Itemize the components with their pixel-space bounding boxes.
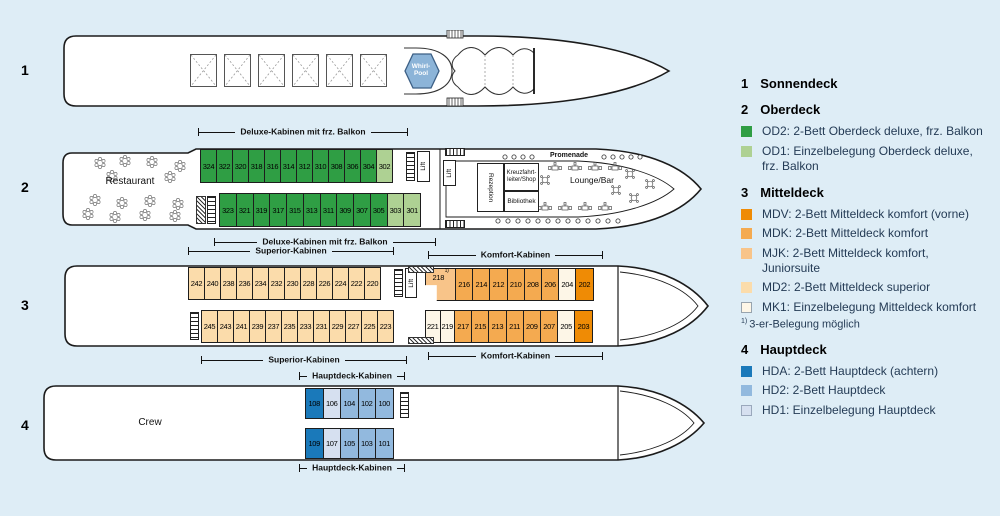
cabin-315[interactable]: 315 [286,193,304,227]
legend-item-hd2: HD2: 2-Bett Hauptdeck [741,383,990,398]
legend-item-mdk: MDK: 2-Bett Mitteldeck komfort [741,226,990,241]
cabin-219[interactable]: 219 [440,310,456,343]
cabin-312[interactable]: 312 [296,149,313,183]
cabin-306[interactable]: 306 [344,149,361,183]
section-label-hauptdeck-bottom: Hauptdeck-Kabinen [299,463,405,473]
cabin-316[interactable]: 316 [264,149,281,183]
stairs-icon [196,196,206,224]
cabin-226[interactable]: 226 [316,267,333,300]
color-swatch-od1 [741,146,752,157]
stairs-icon [400,392,409,418]
legend-item-hda: HDA: 2-Bett Hauptdeck (achtern) [741,364,990,379]
legend-item-hd1: HD1: Einzelbelegung Hauptdeck [741,403,990,418]
deck-plan: 1 Whirl-Pool 2 [0,0,1000,516]
cabin-238[interactable]: 238 [220,267,237,300]
cabin-235[interactable]: 235 [281,310,298,343]
cabin-302[interactable]: 302 [376,149,393,183]
color-swatch-hd2 [741,385,752,396]
legend-section-mitteldeck: 3 Mitteldeck MDV: 2-Bett Mitteldeck komf… [741,185,999,331]
legend-deck-title: Mitteldeck [760,185,824,200]
section-label-hauptdeck-top: Hauptdeck-Kabinen [299,371,405,381]
cabin-220[interactable]: 220 [364,267,381,300]
cabin-202[interactable]: 202 [575,268,593,301]
cabin-224[interactable]: 224 [332,267,349,300]
hauptdeck-cabin-row-bottom: 109107105103101 [305,428,394,459]
restaurant-label: Restaurant [85,176,175,187]
stairs-icon [190,312,199,340]
cabin-241[interactable]: 241 [233,310,250,343]
mitteldeck-superior-row-top: 242240238236234232230228226224222220 [188,267,381,300]
color-swatch-od2 [741,126,752,137]
cabin-210[interactable]: 210 [507,268,525,301]
section-label-komfort-bottom: Komfort-Kabinen [428,351,603,361]
cabin-229[interactable]: 229 [329,310,346,343]
color-swatch-mk1 [741,302,752,313]
legend-section-sonnendeck: 1 Sonnendeck [741,76,999,91]
cabin-204[interactable]: 204 [558,268,576,301]
cabin-222[interactable]: 222 [348,267,365,300]
gangway-hatch [408,266,434,273]
legend-item-mk1: MK1: Einzelbelegung Mitteldeck komfort [741,300,990,315]
cabin-206[interactable]: 206 [541,268,559,301]
cabin-240[interactable]: 240 [204,267,221,300]
cabin-323[interactable]: 323 [219,193,237,227]
cabin-232[interactable]: 232 [268,267,285,300]
cabin-243[interactable]: 243 [217,310,234,343]
sundeck-panel [258,54,285,87]
lift-box: Lift [417,151,430,182]
cabin-100[interactable]: 100 [375,388,394,419]
deck-number-2: 2 [21,179,29,195]
stairs-icon [207,196,216,224]
cabin-245[interactable]: 245 [201,310,218,343]
deck-number-3: 3 [21,297,29,313]
stairs-icon [406,152,415,181]
awning-icon [452,48,534,95]
mitteldeck-komfort-row-bottom: 221219217215213211209207205203 [425,310,593,343]
cabin-106[interactable]: 106 [323,388,342,419]
section-label-superior-bottom: Superior-Kabinen [201,355,407,365]
mitteldeck-komfort-row-top: 2181)216214212210208206204202 [425,268,594,301]
stairs-icon [445,148,465,156]
stairs-icon [445,220,465,228]
library-box: Bibliothek [504,191,539,212]
legend-deck-title: Hauptdeck [760,342,826,357]
oberdeck-cabin-row-top: 324322320318316314312310308306304302 [200,149,393,183]
sundeck-panel [326,54,353,87]
cabin-230[interactable]: 230 [284,267,301,300]
cabin-107[interactable]: 107 [323,428,342,459]
cabin-320[interactable]: 320 [232,149,249,183]
cabin-205[interactable]: 205 [557,310,575,343]
whirlpool-label: Whirl-Pool [406,63,436,77]
cabin-208[interactable]: 208 [524,268,542,301]
gangway-hatch [408,337,434,344]
cabin-314[interactable]: 314 [280,149,297,183]
legend-item-od2: OD2: 2-Bett Oberdeck deluxe, frz. Balkon [741,124,990,139]
color-swatch-hda [741,366,752,377]
legend-deck-number: 3 [741,185,748,200]
stairs-icon [394,269,403,297]
cabin-237[interactable]: 237 [265,310,282,343]
cabin-313[interactable]: 313 [303,193,321,227]
deck-number-4: 4 [21,417,29,433]
cabin-310[interactable]: 310 [312,149,329,183]
cabin-207[interactable]: 207 [540,310,558,343]
hauptdeck-cabin-row-top: 108106104102100 [305,388,394,419]
reception-box: Rezeption [477,163,504,212]
cabin-318[interactable]: 318 [248,149,265,183]
cabin-321[interactable]: 321 [236,193,254,227]
cabin-311[interactable]: 311 [320,193,338,227]
sundeck-panel [224,54,251,87]
cabin-322[interactable]: 322 [216,149,233,183]
cabin-317[interactable]: 317 [269,193,287,227]
lift-box: Lift [443,160,456,186]
cabin-215[interactable]: 215 [471,310,489,343]
legend-item-mdv: MDV: 2-Bett Mitteldeck komfort (vorne) [741,207,990,222]
color-swatch-md2 [741,282,752,293]
cruise-director-shop-box: Kreuzfahrt-leiter/Shop [504,163,539,191]
section-label-superior-top: Superior-Kabinen [188,246,394,256]
lounge-bar-label: Lounge/Bar [552,175,632,185]
cabin-225[interactable]: 225 [361,310,378,343]
cabin-303[interactable]: 303 [387,193,405,227]
sundeck-panel [360,54,387,87]
legend-deck-number: 4 [741,342,748,357]
crew-label: Crew [110,417,190,428]
cabin-217[interactable]: 217 [454,310,472,343]
legend-deck-title: Sonnendeck [760,76,837,91]
sundeck-panel [292,54,319,87]
cabin-101[interactable]: 101 [375,428,394,459]
cabin-213[interactable]: 213 [488,310,506,343]
cabin-216[interactable]: 216 [455,268,473,301]
legend-section-hauptdeck: 4 Hauptdeck HDA: 2-Bett Hauptdeck (achte… [741,342,999,418]
cabin-236[interactable]: 236 [236,267,253,300]
cabin-102[interactable]: 102 [358,388,377,419]
cabin-305[interactable]: 305 [370,193,388,227]
cabin-203[interactable]: 203 [574,310,592,343]
cabin-109[interactable]: 109 [305,428,324,459]
cabin-239[interactable]: 239 [249,310,266,343]
cabin-301[interactable]: 301 [403,193,421,227]
cabin-324[interactable]: 324 [200,149,217,183]
color-swatch-hd1 [741,405,752,416]
legend-item-md2: MD2: 2-Bett Mitteldeck superior [741,280,990,295]
legend-deck-title: Oberdeck [760,102,820,117]
cabin-228[interactable]: 228 [300,267,317,300]
legend-deck-number: 1 [741,76,748,91]
legend-item-mjk: MJK: 2-Bett Mitteldeck komfort, Juniorsu… [741,246,990,276]
color-swatch-mdv [741,209,752,220]
cabin-211[interactable]: 211 [506,310,524,343]
cabin-308[interactable]: 308 [328,149,345,183]
cabin-234[interactable]: 234 [252,267,269,300]
cabin-105[interactable]: 105 [340,428,359,459]
cabin-108[interactable]: 108 [305,388,324,419]
oberdeck-cabin-row-bottom: 323321319317315313311309307305303301 [219,193,421,227]
legend-footnote: 1)3-er-Belegung möglich [741,318,999,331]
legend-deck-number: 2 [741,102,748,117]
cabin-231[interactable]: 231 [313,310,330,343]
legend-item-od1: OD1: Einzelbelegung Oberdeck deluxe, frz… [741,144,990,174]
sundeck-panel [190,54,217,87]
cabin-103[interactable]: 103 [358,428,377,459]
legend: 1 Sonnendeck 2 Oberdeck OD2: 2-Bett Ober… [741,76,999,429]
color-swatch-mjk [741,248,752,259]
cabin-304[interactable]: 304 [360,149,377,183]
cabin-212[interactable]: 212 [489,268,507,301]
cabin-233[interactable]: 233 [297,310,314,343]
mitteldeck-superior-row-bottom: 245243241239237235233231229227225223 [201,310,394,343]
cabin-104[interactable]: 104 [340,388,359,419]
color-swatch-mdk [741,228,752,239]
section-label-deluxe-top: Deluxe-Kabinen mit frz. Balkon [198,127,408,137]
cabin-309[interactable]: 309 [336,193,354,227]
legend-section-oberdeck: 2 Oberdeck OD2: 2-Bett Oberdeck deluxe, … [741,102,999,174]
cabin-209[interactable]: 209 [523,310,541,343]
deck-number-1: 1 [21,62,29,78]
promenade-label: Promenade [535,152,603,159]
cabin-227[interactable]: 227 [345,310,362,343]
cabin-214[interactable]: 214 [472,268,490,301]
cabin-319[interactable]: 319 [253,193,271,227]
cabin-307[interactable]: 307 [353,193,371,227]
cabin-242[interactable]: 242 [188,267,205,300]
section-label-komfort-top: Komfort-Kabinen [428,250,603,260]
cabin-223[interactable]: 223 [377,310,394,343]
